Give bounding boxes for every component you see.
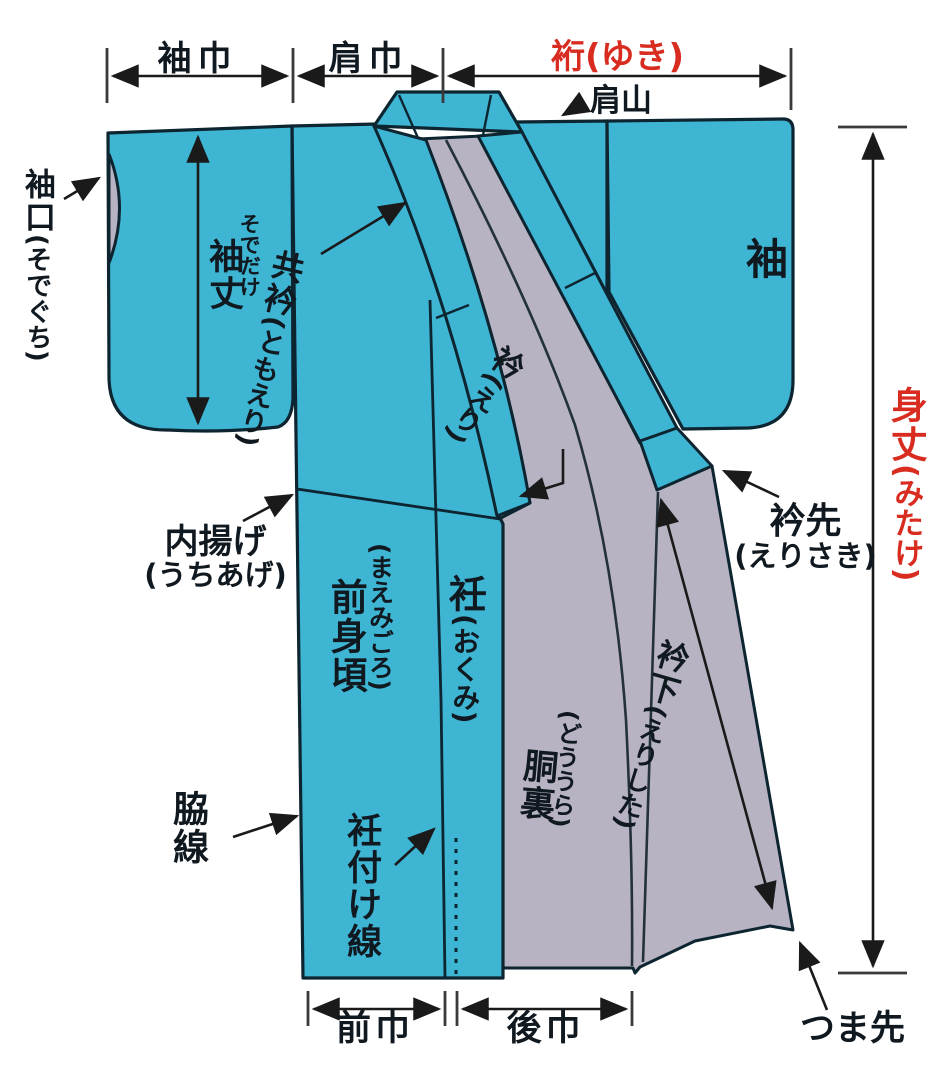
leader-sodeguchi	[64, 178, 99, 199]
label-sode: 袖	[746, 238, 788, 283]
label-sodeguchi-main: 袖口	[19, 168, 55, 234]
label-sodeguchi-reading: (そでぐち)	[22, 234, 52, 362]
label-maemigoro-reading: (まえみごろ)	[366, 543, 393, 691]
label-erisaki-reading: (えりさき)	[718, 541, 893, 572]
label-kata-haba: 肩巾	[296, 41, 441, 77]
label-uchiage-reading: (うちあげ)	[133, 560, 298, 591]
label-uchiage: 内揚げ (うちあげ)	[133, 524, 298, 591]
kimono-diagram: 袖巾 肩巾 裄(ゆき) 肩山 袖口(そでぐち) そでだけ 袖丈 共衿(ともえり)…	[0, 0, 950, 1080]
label-tsumasaki: つま先	[800, 1011, 905, 1048]
label-ushiro-haba: 後巾	[473, 1011, 618, 1048]
label-sodetake-main: 袖丈	[204, 238, 241, 312]
label-doura-main: 胴裏	[514, 746, 557, 823]
label-mitake-reading: (みたけ)	[888, 464, 923, 581]
label-okumi-reading: (おくみ)	[448, 614, 481, 724]
label-erisaki-main: 衿先	[718, 503, 893, 541]
shape-collar-cap	[374, 92, 522, 132]
label-maemigoro-main: 前身頃	[326, 578, 365, 695]
label-mitake: 身丈(みたけ)	[886, 386, 925, 581]
label-yuki: 裄(ゆき)	[495, 39, 740, 75]
label-uchiage-main: 内揚げ	[133, 524, 298, 560]
label-mitake-main: 身丈	[884, 386, 927, 464]
label-mae-haba: 前巾	[310, 1011, 440, 1048]
label-sode-haba: 袖巾	[125, 41, 270, 77]
label-sodeguchi: 袖口(そでぐち)	[20, 168, 53, 362]
leader-erisaki	[724, 471, 779, 497]
label-wakisen: 脇線	[168, 790, 206, 866]
label-okumi-main: 衽	[442, 574, 486, 614]
leader-uchiage	[243, 495, 292, 521]
label-okumitsuke: 衽付け線	[342, 812, 379, 960]
leader-tsumasaki	[800, 943, 827, 1010]
label-erisaki: 衿先 (えりさき)	[718, 503, 893, 572]
label-okumi: 衽(おくみ)	[444, 574, 484, 724]
leader-katayama	[563, 102, 585, 115]
label-katayama: 肩山	[590, 85, 652, 118]
leader-wakisen	[233, 816, 297, 837]
